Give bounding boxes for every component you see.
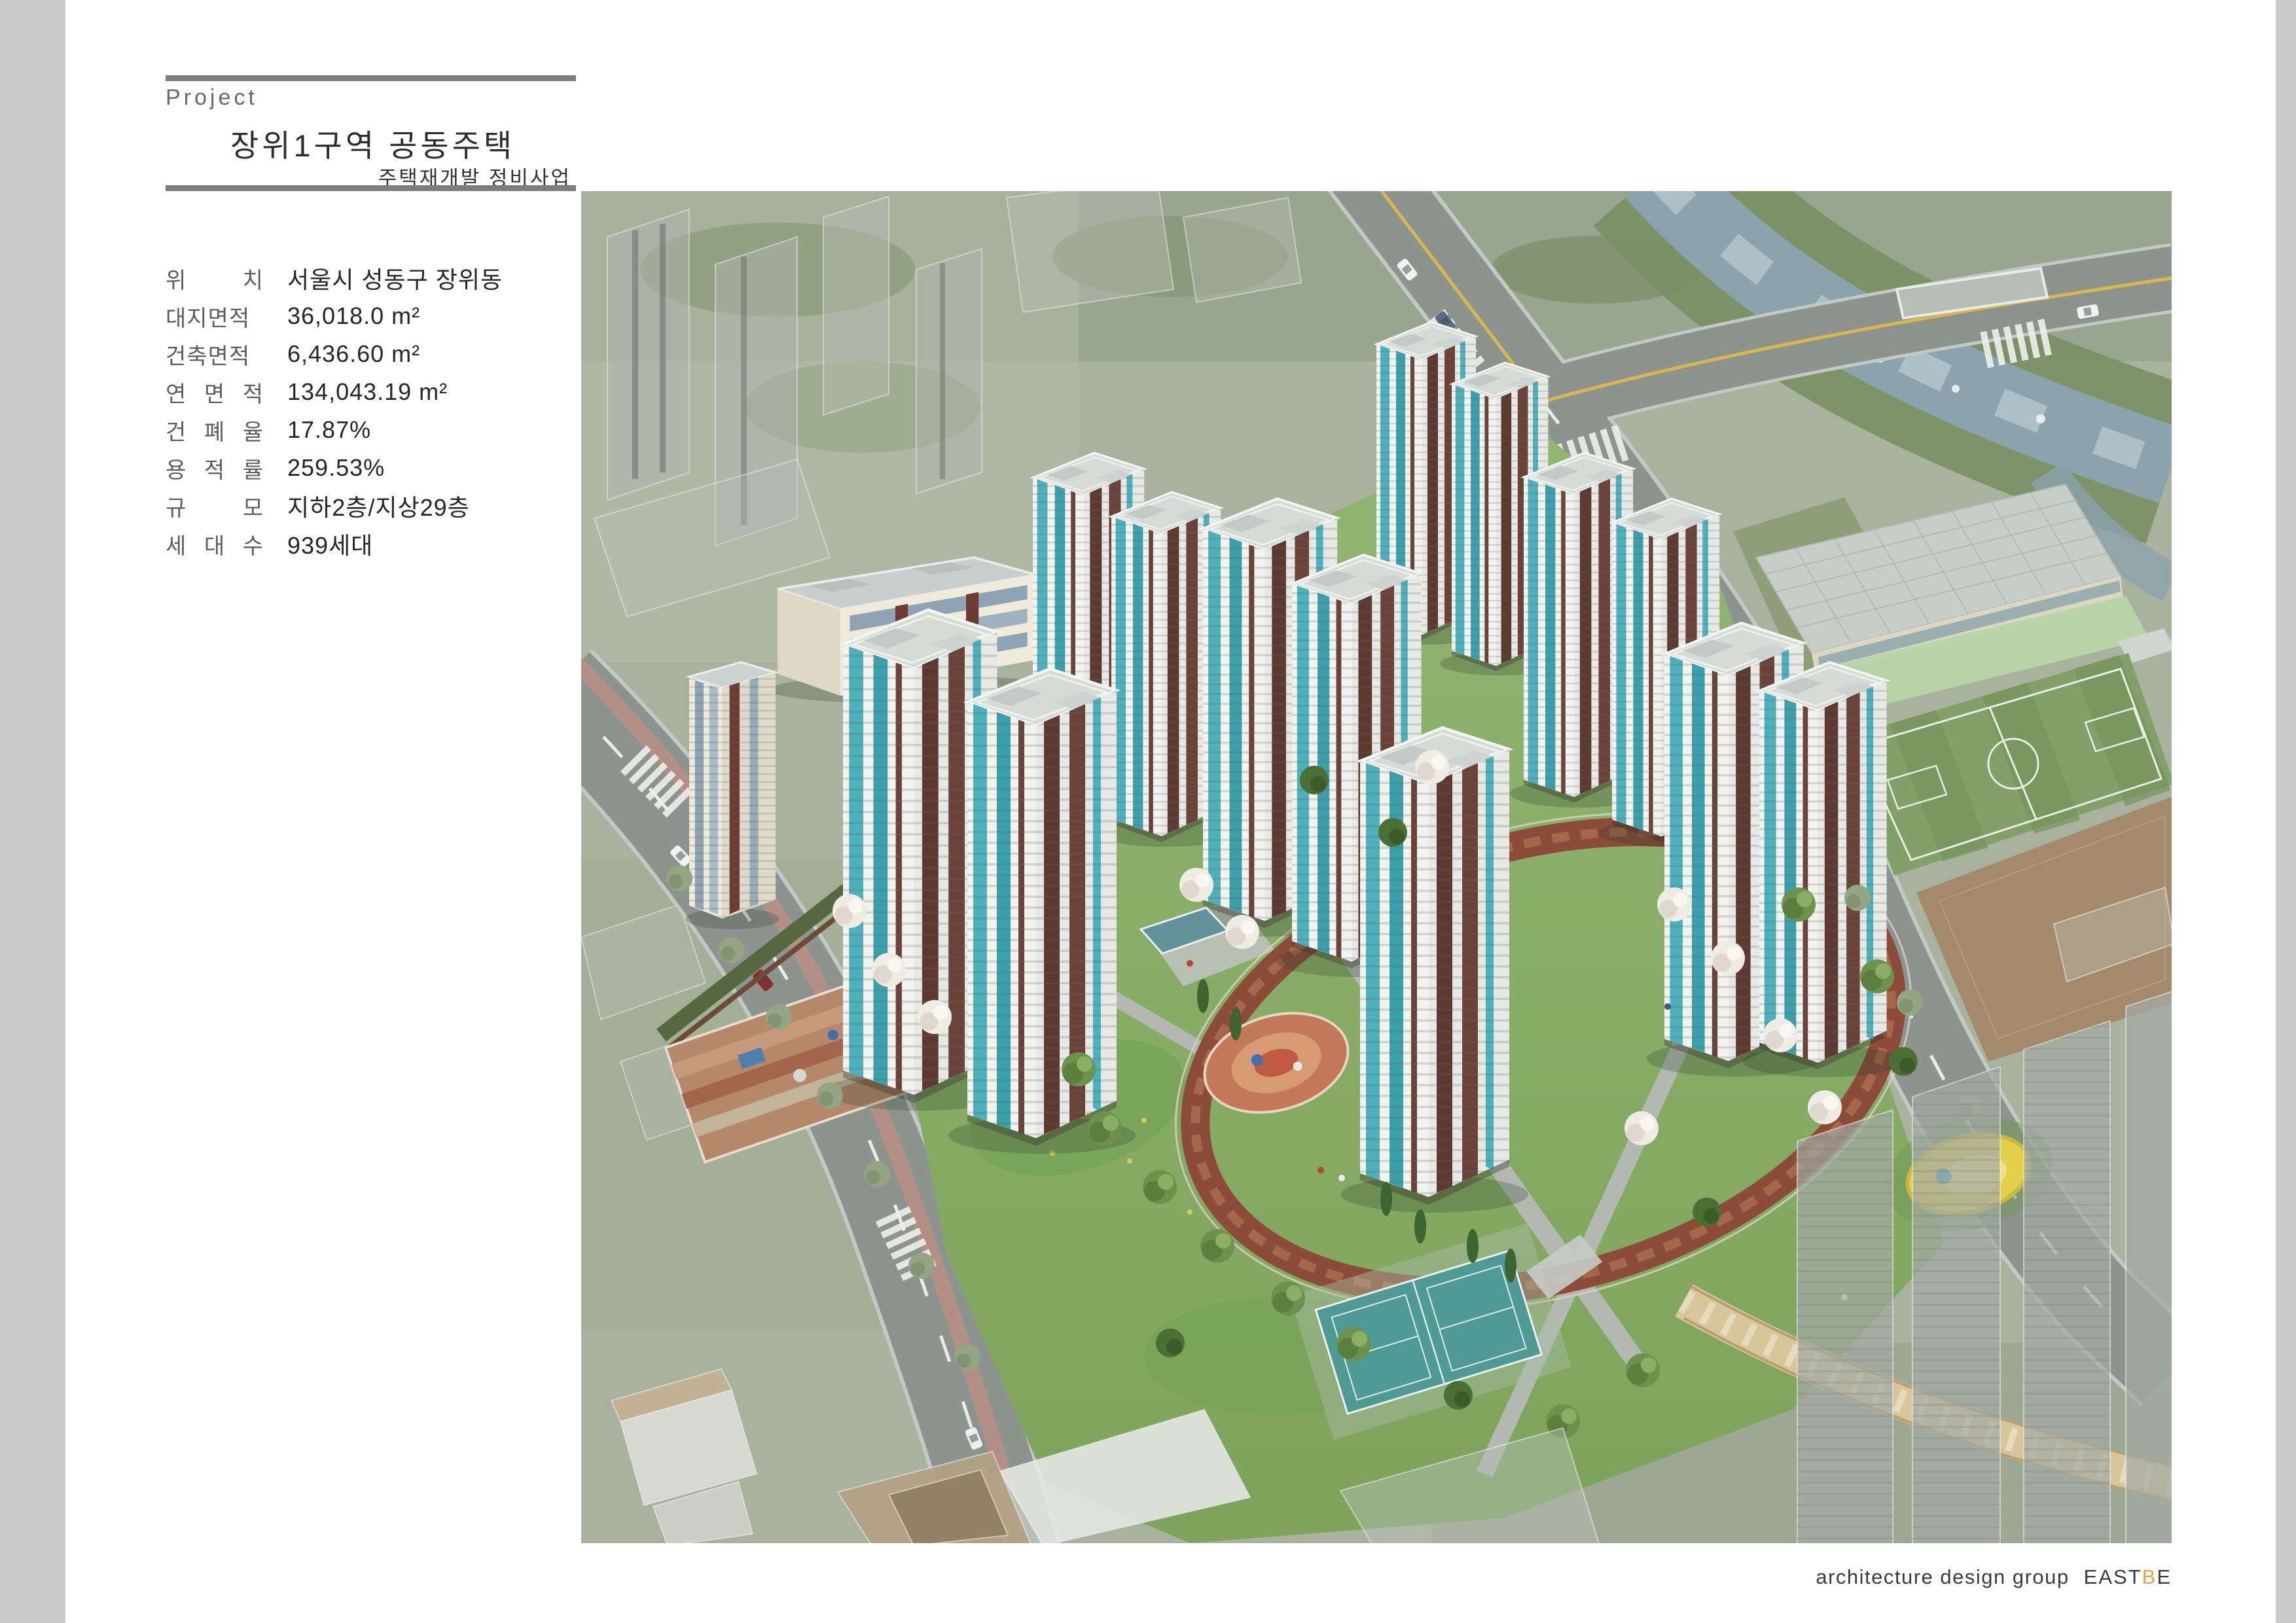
project-eyebrow-label: Project	[166, 85, 258, 111]
header-rule-top	[166, 75, 576, 81]
right-margin-bar	[2276, 0, 2296, 1623]
detail-value: 지하2층/지상29층	[287, 489, 470, 523]
detail-label: 연 면 적	[166, 376, 264, 408]
detail-value: 259.53%	[287, 454, 385, 482]
detail-row-building-area: 건축면적 6,436.60 m²	[166, 335, 503, 373]
detail-value: 36,018.0 m²	[287, 302, 420, 330]
detail-row-households: 세 대 수 939세대	[166, 525, 503, 563]
left-margin-bar	[0, 0, 65, 1623]
detail-row-floor-area-ratio: 용 적 률 259.53%	[166, 449, 503, 487]
aerial-rendering-svg	[581, 191, 2172, 1543]
detail-label: 건 폐 율	[166, 414, 264, 446]
credit-brand: EASTBE	[2084, 1565, 2172, 1588]
detail-row-coverage-ratio: 건 폐 율 17.87%	[166, 411, 503, 449]
credit-prefix: architecture design group	[1816, 1565, 2069, 1588]
project-details-list: 위 치 서울시 성동구 장위동 대지면적 36,018.0 m² 건축면적 6,…	[166, 259, 503, 563]
detail-label: 위 치	[166, 262, 264, 294]
site-aerial-rendering	[581, 191, 2172, 1543]
detail-label: 건축면적	[166, 338, 264, 370]
detail-row-gross-floor-area: 연 면 적 134,043.19 m²	[166, 373, 503, 411]
detail-row-scale: 규 모 지하2층/지상29층	[166, 487, 503, 525]
detail-label: 대지면적	[166, 300, 264, 332]
designer-credit: architecture design groupEASTBE	[1816, 1565, 2172, 1589]
presentation-page: { "page": { "background": "#ffffff", "si…	[0, 0, 2296, 1623]
detail-value: 서울시 성동구 장위동	[287, 261, 503, 295]
detail-label: 규 모	[166, 490, 264, 522]
detail-value: 17.87%	[287, 416, 371, 444]
detail-value: 939세대	[287, 527, 373, 561]
detail-value: 134,043.19 m²	[287, 378, 448, 406]
detail-row-site-area: 대지면적 36,018.0 m²	[166, 297, 503, 335]
detail-row-location: 위 치 서울시 성동구 장위동	[166, 259, 503, 297]
detail-value: 6,436.60 m²	[287, 340, 420, 368]
header-rule-bottom	[166, 185, 576, 191]
page-title: 장위1구역 공동주택	[230, 120, 515, 166]
detail-label: 세 대 수	[166, 528, 264, 560]
detail-label: 용 적 률	[166, 452, 264, 484]
credit-brand-accent-letter: B	[2142, 1565, 2157, 1588]
